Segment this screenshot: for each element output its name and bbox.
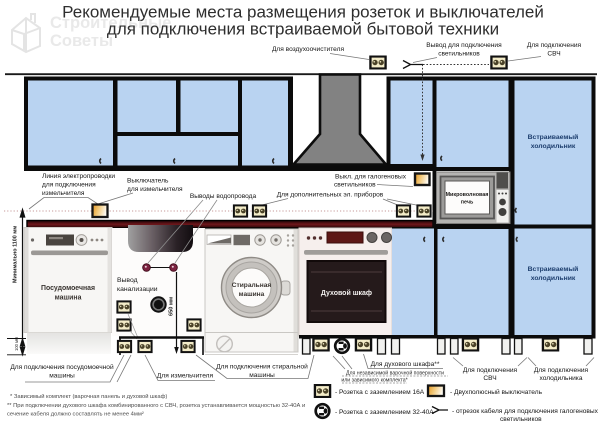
svg-text:Для подключения стиральной: Для подключения стиральной <box>216 363 308 371</box>
svg-text:машина: машина <box>55 295 82 302</box>
svg-text:Микроволновая: Микроволновая <box>446 192 489 198</box>
svg-text:машины: машины <box>49 373 75 380</box>
svg-text:Выводы водопровода: Выводы водопровода <box>190 193 257 200</box>
svg-text:СВЧ: СВЧ <box>547 51 560 58</box>
svg-text:печь: печь <box>461 200 474 206</box>
svg-text:или зависимого комплекта*: или зависимого комплекта* <box>341 378 407 384</box>
svg-text:Для подключения: Для подключения <box>463 367 518 374</box>
svg-text:СВЧ: СВЧ <box>483 375 496 382</box>
svg-text:- Двухполюсный выключатель: - Двухполюсный выключатель <box>450 388 543 396</box>
svg-text:Для независимой варочной повер: Для независимой варочной поверхности <box>346 370 444 377</box>
svg-text:Выкл. для галогеновых: Выкл. для галогеновых <box>335 174 407 181</box>
svg-text:Встраиваемый: Встраиваемый <box>528 133 579 141</box>
svg-text:- Розетка с заземлением 16А: - Розетка с заземлением 16А <box>335 389 425 396</box>
svg-text:машины: машины <box>249 372 275 379</box>
svg-text:Минимально 1100 мм: Минимально 1100 мм <box>13 226 19 283</box>
svg-text:измельчителя: измельчителя <box>42 190 85 197</box>
svg-text:- Розетка с заземлением 32-40А: - Розетка с заземлением 32-40А <box>335 409 434 416</box>
svg-text:канализации: канализации <box>117 286 158 293</box>
svg-text:Для измельчителя: Для измельчителя <box>157 373 214 380</box>
svg-text:светильников: светильников <box>438 51 480 58</box>
svg-text:* Зависимый комплект (варочная: * Зависимый комплект (варочная панель и … <box>10 393 167 400</box>
svg-text:Для подключения посудомоечной: Для подключения посудомоечной <box>10 363 114 371</box>
svg-text:светильников: светильников <box>334 182 376 189</box>
svg-text:- отрезок кабеля для подключен: - отрезок кабеля для подключения галоген… <box>452 407 599 415</box>
svg-text:Посудомоечная: Посудомоечная <box>41 285 95 292</box>
svg-text:для измельчителя: для измельчителя <box>127 186 183 193</box>
svg-text:Для подключения: Для подключения <box>527 42 582 49</box>
svg-text:Советы: Советы <box>50 32 113 50</box>
svg-text:Вывод: Вывод <box>117 277 138 284</box>
svg-text:для подключения: для подключения <box>42 182 96 189</box>
svg-text:Линия электропроводки: Линия электропроводки <box>42 173 115 180</box>
svg-text:сечение кабеля должно составля: сечение кабеля должно составлять не мене… <box>7 412 144 418</box>
svg-text:Для духового шкафа**: Для духового шкафа** <box>371 361 440 368</box>
svg-text:100 мм: 100 мм <box>14 337 19 351</box>
svg-text:Вывод для подключения: Вывод для подключения <box>426 42 502 49</box>
svg-text:машина: машина <box>239 291 265 298</box>
svg-text:Выключатель: Выключатель <box>127 178 169 185</box>
svg-text:Для воздухоочистителя: Для воздухоочистителя <box>272 46 345 53</box>
svg-text:Стиральная: Стиральная <box>232 282 272 289</box>
svg-text:светильников: светильников <box>500 416 542 423</box>
svg-text:** При подключении духового шк: ** При подключении духового шкафа комбин… <box>7 403 305 409</box>
svg-text:для подключения встраиваемой б: для подключения встраиваемой бытовой тех… <box>107 20 499 39</box>
svg-text:холодильник: холодильник <box>531 275 576 282</box>
svg-text:Духовой шкаф: Духовой шкаф <box>321 289 372 297</box>
svg-text:холодильник: холодильник <box>531 143 576 150</box>
svg-text:холодильника: холодильника <box>539 375 582 382</box>
svg-text:Для дополнительных эл. прибор: Для дополнительных эл. приборов <box>277 191 384 199</box>
svg-text:Для подключения: Для подключения <box>534 367 589 374</box>
svg-text:Встраиваемый: Встраиваемый <box>528 265 579 273</box>
svg-text:650 мм: 650 мм <box>169 297 175 316</box>
